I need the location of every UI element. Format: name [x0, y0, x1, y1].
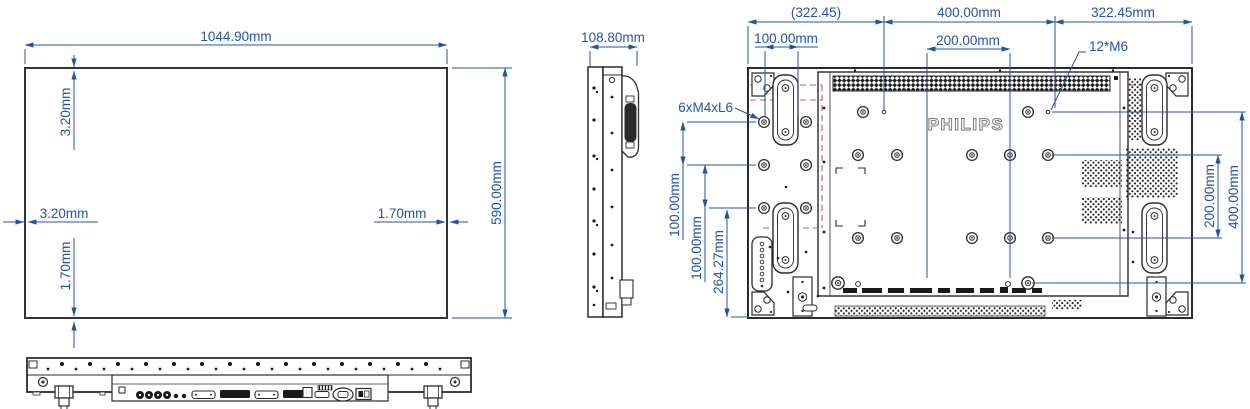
rear-view: PHILIPS: [667, 5, 1246, 318]
front-bezel-left-label: 3.20mm: [40, 206, 89, 221]
front-bezel-top-label: 3.20mm: [58, 88, 73, 137]
dvi-port: [220, 390, 250, 398]
rear-264mm-label: 264.27mm: [711, 230, 726, 294]
front-bezel-right-label: 1.70mm: [378, 206, 427, 221]
rear-100mm-h-label: 100.00mm: [754, 31, 818, 46]
vent-dots-inner-a: [1082, 160, 1122, 187]
front-panel-outline: [25, 68, 447, 318]
front-width-dimension: 1044.90mm: [25, 29, 447, 64]
front-height-label: 590.00mm: [489, 161, 504, 225]
rear-400mm-v-label: 400.00mm: [1226, 165, 1241, 229]
bottom-vent-small: [1052, 300, 1082, 309]
wall-mount-foot-right: [424, 386, 442, 409]
rear-200mm-h-label: 200.00mm: [936, 33, 1000, 48]
side-profile: [588, 67, 639, 317]
side-handle-grip: [625, 103, 637, 142]
rear-200mm-v-label: 200.00mm: [1202, 164, 1217, 228]
terminal-block: [318, 386, 332, 391]
side-depth-label: 108.80mm: [581, 30, 645, 45]
rear-ref-322-label: (322.45): [791, 5, 841, 20]
front-bezel-right-dimension: 1.70mm: [374, 206, 468, 222]
m6-spec-label: 12*M6: [1089, 39, 1128, 54]
rear-322-label: 322.45mm: [1091, 5, 1155, 20]
m4-spec-label: 6xM4xL6: [678, 100, 733, 115]
front-width-label: 1044.90mm: [200, 29, 271, 44]
rear-100mm-v1-label: 100.00mm: [667, 173, 682, 237]
rear-inner-module: [818, 72, 1128, 296]
m4-callout: 6xM4xL6: [678, 100, 759, 119]
vent-dots-right-top: [1128, 78, 1141, 140]
front-bezel-bottom-label: 1.70mm: [58, 242, 73, 291]
left-connector-strip: [752, 237, 772, 291]
serial-port: [315, 392, 329, 398]
front-height-dimension: 590.00mm: [452, 68, 512, 318]
side-depth-dimension: 108.80mm: [581, 30, 645, 66]
rear-vesa-width-label: 400.00mm: [937, 5, 1001, 20]
vent-dots-inner-b: [1082, 197, 1122, 224]
top-vent-grille: [833, 76, 1110, 91]
bottom-vent-strip: [835, 306, 1045, 316]
bottom-screw-dot-row: [40, 360, 442, 372]
drawing-page: 1044.90mm 590.00mm 3.20mm 3.20mm 1.70mm: [0, 0, 1250, 409]
handle-left-bottom: [773, 203, 798, 273]
philips-logo: PHILIPS: [928, 115, 1005, 134]
handle-left-top: [773, 75, 798, 145]
rear-100mm-v2-label: 100.00mm: [689, 216, 704, 280]
rear-left-dimensions: 100.00mm 100.00mm 264.27mm: [667, 122, 756, 317]
side-view: 108.80mm: [581, 30, 645, 317]
wall-mount-foot-left: [55, 386, 73, 409]
front-bezel-left-dimension: 3.20mm: [3, 206, 98, 222]
front-view: 1044.90mm 590.00mm 3.20mm 3.20mm 1.70mm: [3, 29, 512, 348]
handle-right-top: [1142, 75, 1167, 145]
usb-port: [303, 388, 312, 398]
bottom-view: [27, 358, 471, 409]
technical-drawing-canvas: 1044.90mm 590.00mm 3.20mm 3.20mm 1.70mm: [0, 0, 1250, 409]
